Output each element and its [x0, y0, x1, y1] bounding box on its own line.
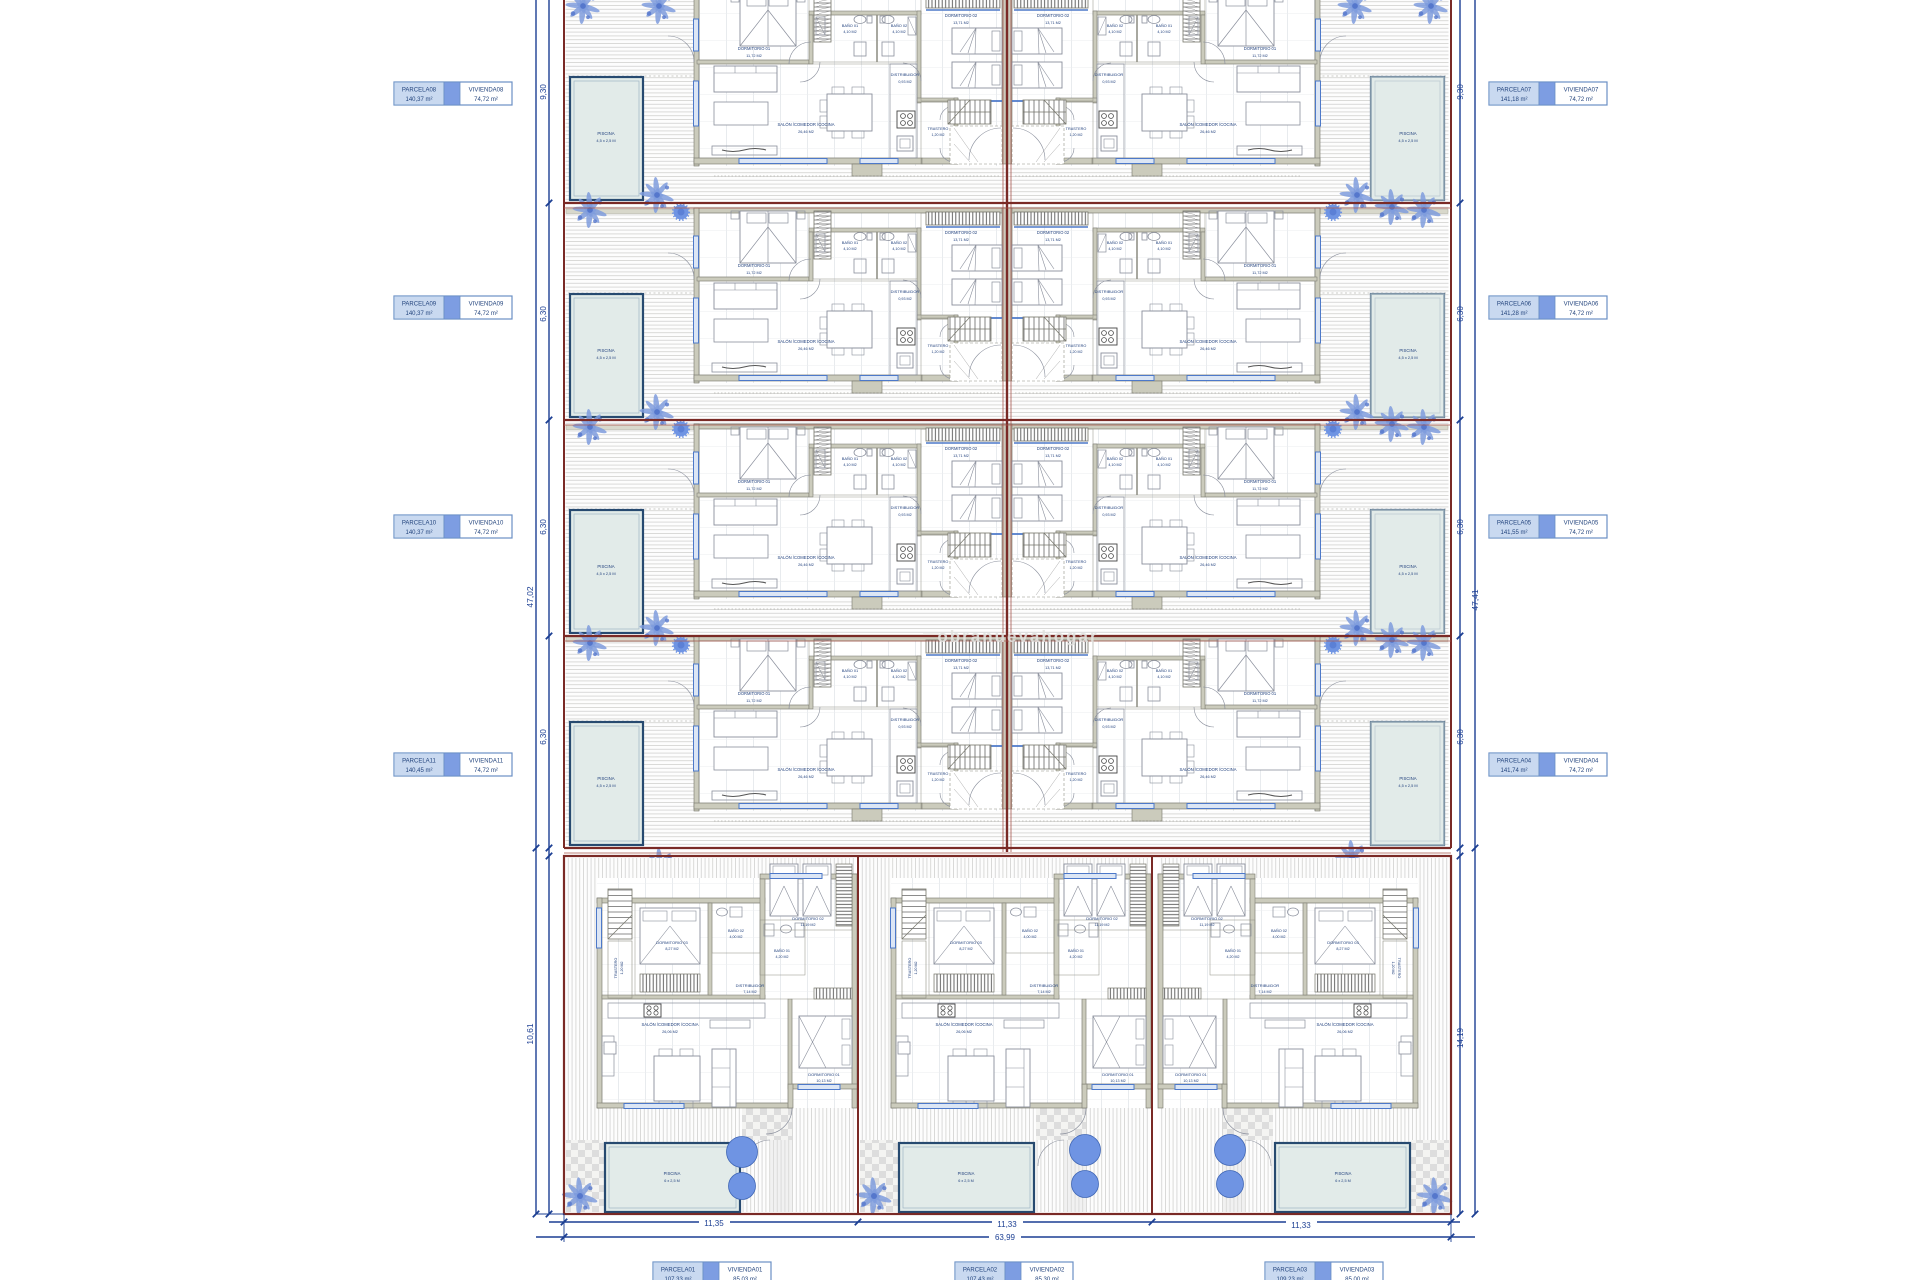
svg-text:PISCINA: PISCINA [958, 1171, 975, 1176]
svg-text:PARCELA04: PARCELA04 [1497, 759, 1532, 765]
svg-text:26,46 M2: 26,46 M2 [1200, 775, 1216, 779]
svg-text:4,10 M2: 4,10 M2 [1108, 247, 1121, 251]
svg-text:4,20 M2: 4,20 M2 [1227, 955, 1240, 959]
svg-text:11,72 M2: 11,72 M2 [1252, 54, 1268, 58]
svg-text:SALÓN /COMEDOR /COCINA: SALÓN /COMEDOR /COCINA [1179, 767, 1236, 772]
svg-text:PISCINA: PISCINA [597, 564, 614, 569]
svg-text:DISTRIBUIDOR: DISTRIBUIDOR [1095, 289, 1124, 294]
svg-text:SALÓN /COMEDOR /COCINA: SALÓN /COMEDOR /COCINA [1179, 555, 1236, 560]
svg-text:1,20 M2: 1,20 M2 [1070, 350, 1083, 354]
svg-text:DORMITORIO 01: DORMITORIO 01 [738, 46, 771, 51]
svg-text:11,33: 11,33 [997, 1220, 1017, 1229]
svg-text:BAÑO 02: BAÑO 02 [1107, 240, 1123, 245]
svg-text:10,13 M2: 10,13 M2 [1110, 1079, 1125, 1083]
svg-text:26,46 M2: 26,46 M2 [798, 347, 814, 351]
svg-text:VIVIENDA08: VIVIENDA08 [469, 88, 504, 94]
svg-text:1,20 M2: 1,20 M2 [914, 962, 918, 975]
svg-text:DORMITORIO 02: DORMITORIO 02 [792, 916, 824, 921]
svg-text:DORMITORIO 01: DORMITORIO 01 [1175, 1072, 1207, 1077]
svg-text:PARCELA05: PARCELA05 [1497, 521, 1532, 527]
svg-text:8,27 M2: 8,27 M2 [665, 947, 678, 951]
svg-text:VIVIENDA11: VIVIENDA11 [469, 759, 504, 765]
svg-text:9,30: 9,30 [539, 84, 548, 100]
svg-text:SALÓN /COMEDOR /COCINA: SALÓN /COMEDOR /COCINA [1179, 339, 1236, 344]
svg-text:141,28 m²: 141,28 m² [1500, 311, 1527, 317]
svg-text:4,5 x 2,5 M: 4,5 x 2,5 M [596, 355, 615, 360]
svg-text:74,72 m²: 74,72 m² [474, 768, 498, 774]
svg-text:8,27 M2: 8,27 M2 [959, 947, 972, 951]
svg-text:0,93 M2: 0,93 M2 [898, 80, 911, 84]
svg-text:BAÑO 01: BAÑO 01 [1156, 23, 1172, 28]
svg-text:DISTRIBUIDOR: DISTRIBUIDOR [891, 717, 920, 722]
svg-text:BAÑO 02: BAÑO 02 [1107, 668, 1123, 673]
svg-text:26,46 M2: 26,46 M2 [798, 563, 814, 567]
svg-text:4,10 M2: 4,10 M2 [892, 30, 905, 34]
svg-text:TRASTERO: TRASTERO [1066, 772, 1087, 776]
svg-text:4,20 M2: 4,20 M2 [776, 955, 789, 959]
svg-text:DISTRIBUIDOR: DISTRIBUIDOR [1095, 717, 1124, 722]
svg-text:BAÑO 01: BAÑO 01 [842, 23, 858, 28]
svg-text:6,30: 6,30 [1456, 519, 1465, 535]
svg-text:4,5 x 2,5 M: 4,5 x 2,5 M [1398, 138, 1417, 143]
svg-text:PARCELA08: PARCELA08 [402, 88, 437, 94]
svg-text:4,00 M2: 4,00 M2 [1024, 935, 1037, 939]
svg-text:26,46 M2: 26,46 M2 [1200, 563, 1216, 567]
svg-text:0,93 M2: 0,93 M2 [1102, 725, 1115, 729]
svg-text:DORMITORIO 02: DORMITORIO 02 [945, 658, 978, 663]
svg-text:PISCINA: PISCINA [597, 348, 614, 353]
svg-text:4,10 M2: 4,10 M2 [1108, 675, 1121, 679]
svg-text:1,20 M2: 1,20 M2 [1391, 962, 1395, 975]
svg-text:13,71 M2: 13,71 M2 [953, 21, 969, 25]
svg-text:26,06 M2: 26,06 M2 [662, 1030, 678, 1034]
svg-text:0,93 M2: 0,93 M2 [898, 297, 911, 301]
svg-text:TRASTERO: TRASTERO [908, 958, 912, 979]
svg-text:11,33: 11,33 [1291, 1221, 1311, 1230]
svg-text:DORMITORIO 01: DORMITORIO 01 [738, 479, 771, 484]
svg-text:VIVIENDA05: VIVIENDA05 [1564, 521, 1599, 527]
svg-text:26,46 M2: 26,46 M2 [1200, 130, 1216, 134]
svg-text:0,93 M2: 0,93 M2 [1102, 297, 1115, 301]
svg-text:11,72 M2: 11,72 M2 [1252, 699, 1268, 703]
svg-text:11,72 M2: 11,72 M2 [746, 699, 762, 703]
svg-text:VIVIENDA09: VIVIENDA09 [469, 302, 504, 308]
svg-text:74,72 m²: 74,72 m² [474, 97, 498, 103]
svg-text:6 x 2,5 M: 6 x 2,5 M [1335, 1179, 1351, 1183]
svg-text:4,10 M2: 4,10 M2 [1108, 463, 1121, 467]
svg-text:DISTRIBUIDOR: DISTRIBUIDOR [1251, 983, 1280, 988]
svg-text:BAÑO 02: BAÑO 02 [891, 668, 907, 673]
svg-text:13,71 M2: 13,71 M2 [953, 454, 969, 458]
svg-text:4,10 M2: 4,10 M2 [843, 30, 856, 34]
svg-text:VIVIENDA07: VIVIENDA07 [1564, 88, 1599, 94]
svg-text:BAÑO 01: BAÑO 01 [1156, 240, 1172, 245]
svg-text:4,10 M2: 4,10 M2 [843, 675, 856, 679]
svg-text:63,99: 63,99 [995, 1233, 1016, 1242]
svg-text:TRASTERO: TRASTERO [1066, 344, 1087, 348]
svg-text:DORMITORIO 01: DORMITORIO 01 [1244, 479, 1277, 484]
svg-text:11,19 M2: 11,19 M2 [1094, 923, 1109, 927]
svg-text:DORMITORIO 02: DORMITORIO 02 [1037, 658, 1070, 663]
svg-text:141,18 m²: 141,18 m² [1500, 97, 1527, 103]
svg-text:DORMITORIO 03: DORMITORIO 03 [950, 940, 982, 945]
svg-text:BAÑO 02: BAÑO 02 [728, 928, 744, 933]
svg-text:DORMITORIO 01: DORMITORIO 01 [738, 691, 771, 696]
svg-text:74,72 m²: 74,72 m² [474, 311, 498, 317]
svg-text:1,20 M2: 1,20 M2 [932, 778, 945, 782]
svg-text:4,10 M2: 4,10 M2 [1157, 463, 1170, 467]
svg-text:TRASTERO: TRASTERO [1066, 560, 1087, 564]
svg-text:PISCINA: PISCINA [1399, 348, 1416, 353]
svg-text:4,10 M2: 4,10 M2 [843, 463, 856, 467]
svg-text:TRASTERO: TRASTERO [928, 772, 949, 776]
svg-text:140,37 m²: 140,37 m² [405, 311, 432, 317]
svg-text:PISCINA: PISCINA [664, 1171, 681, 1176]
svg-text:DORMITORIO 02: DORMITORIO 02 [1037, 446, 1070, 451]
svg-text:PISCINA: PISCINA [1399, 131, 1416, 136]
svg-text:14,19: 14,19 [1456, 1027, 1465, 1048]
svg-text:1,20 M2: 1,20 M2 [932, 133, 945, 137]
svg-text:13,71 M2: 13,71 M2 [1045, 21, 1061, 25]
svg-text:13,71 M2: 13,71 M2 [953, 666, 969, 670]
svg-text:26,46 M2: 26,46 M2 [798, 130, 814, 134]
svg-text:74,72 m²: 74,72 m² [474, 530, 498, 536]
svg-text:DISTRIBUIDOR: DISTRIBUIDOR [736, 983, 765, 988]
svg-text:DISTRIBUIDOR: DISTRIBUIDOR [1095, 505, 1124, 510]
svg-text:SALÓN /COMEDOR /COCINA: SALÓN /COMEDOR /COCINA [777, 555, 834, 560]
svg-text:1,20 M2: 1,20 M2 [620, 962, 624, 975]
svg-text:11,19 M2: 11,19 M2 [800, 923, 815, 927]
svg-text:13,71 M2: 13,71 M2 [1045, 454, 1061, 458]
svg-text:DORMITORIO 03: DORMITORIO 03 [656, 940, 688, 945]
svg-text:PARCELA10: PARCELA10 [402, 521, 437, 527]
svg-text:BAÑO 02: BAÑO 02 [1022, 928, 1038, 933]
svg-text:26,06 M2: 26,06 M2 [1337, 1030, 1353, 1034]
svg-text:PISCINA: PISCINA [597, 131, 614, 136]
svg-text:PARCELA03: PARCELA03 [1273, 1268, 1308, 1274]
svg-text:BAÑO 01: BAÑO 01 [1156, 668, 1172, 673]
svg-text:10,13 M2: 10,13 M2 [816, 1079, 831, 1083]
svg-text:PARCELA09: PARCELA09 [402, 302, 437, 308]
svg-text:VIVIENDA06: VIVIENDA06 [1564, 302, 1599, 308]
svg-text:4,10 M2: 4,10 M2 [892, 463, 905, 467]
svg-text:DORMITORIO 01: DORMITORIO 01 [738, 263, 771, 268]
svg-text:DORMITORIO 02: DORMITORIO 02 [1037, 230, 1070, 235]
svg-text:TRASTERO: TRASTERO [1066, 127, 1087, 131]
svg-text:140,37 m²: 140,37 m² [405, 97, 432, 103]
svg-text:4,5 x 2,5 M: 4,5 x 2,5 M [1398, 783, 1417, 788]
svg-text:BAÑO 02: BAÑO 02 [891, 456, 907, 461]
svg-text:DISTRIBUIDOR: DISTRIBUIDOR [891, 505, 920, 510]
svg-text:TRASTERO: TRASTERO [928, 127, 949, 131]
svg-text:DISTRIBUIDOR: DISTRIBUIDOR [891, 72, 920, 77]
svg-text:DORMITORIO 03: DORMITORIO 03 [1327, 940, 1359, 945]
svg-text:TRASTERO: TRASTERO [928, 560, 949, 564]
svg-text:1,20 M2: 1,20 M2 [1070, 566, 1083, 570]
svg-text:4,10 M2: 4,10 M2 [1108, 30, 1121, 34]
svg-text:PISCINA: PISCINA [1399, 776, 1416, 781]
svg-text:4,10 M2: 4,10 M2 [892, 675, 905, 679]
svg-text:11,72 M2: 11,72 M2 [1252, 271, 1268, 275]
svg-text:DORMITORIO 02: DORMITORIO 02 [1086, 916, 1118, 921]
svg-text:6,30: 6,30 [539, 519, 548, 535]
svg-text:74,72 m²: 74,72 m² [1569, 311, 1593, 317]
svg-text:10,61: 10,61 [525, 1023, 535, 1045]
svg-text:BAÑO 01: BAÑO 01 [774, 948, 790, 953]
svg-text:4,20 M2: 4,20 M2 [1070, 955, 1083, 959]
svg-text:4,00 M2: 4,00 M2 [730, 935, 743, 939]
svg-text:BAÑO 02: BAÑO 02 [1271, 928, 1287, 933]
svg-text:DORMITORIO 02: DORMITORIO 02 [945, 230, 978, 235]
svg-text:8,27 M2: 8,27 M2 [1336, 947, 1349, 951]
svg-text:4,10 M2: 4,10 M2 [1157, 30, 1170, 34]
svg-text:SALÓN /COMEDOR /COCINA: SALÓN /COMEDOR /COCINA [777, 122, 834, 127]
svg-text:DORMITORIO 01: DORMITORIO 01 [1102, 1072, 1134, 1077]
svg-text:13,71 M2: 13,71 M2 [953, 238, 969, 242]
svg-text:11,72 M2: 11,72 M2 [746, 487, 762, 491]
svg-text:PISCINA: PISCINA [1399, 564, 1416, 569]
svg-text:6 x 2,5 M: 6 x 2,5 M [958, 1179, 974, 1183]
svg-text:1,20 M2: 1,20 M2 [932, 350, 945, 354]
svg-text:SALÓN /COMEDOR /COCINA: SALÓN /COMEDOR /COCINA [777, 767, 834, 772]
svg-text:DISTRIBUIDOR: DISTRIBUIDOR [1030, 983, 1059, 988]
svg-text:DISTRIBUIDOR: DISTRIBUIDOR [891, 289, 920, 294]
svg-text:6,30: 6,30 [539, 306, 548, 322]
svg-text:DORMITORIO 02: DORMITORIO 02 [945, 446, 978, 451]
svg-text:141,74 m²: 141,74 m² [1500, 768, 1527, 774]
svg-text:VIVIENDA02: VIVIENDA02 [1030, 1268, 1065, 1274]
svg-text:4,5 x 2,5 M: 4,5 x 2,5 M [1398, 355, 1417, 360]
svg-text:4,5 x 2,5 M: 4,5 x 2,5 M [1398, 571, 1417, 576]
svg-text:9,30: 9,30 [1456, 84, 1465, 100]
svg-text:4,5 x 2,5 M: 4,5 x 2,5 M [596, 571, 615, 576]
svg-text:26,06 M2: 26,06 M2 [956, 1030, 972, 1034]
svg-text:PISCINA: PISCINA [1335, 1171, 1352, 1176]
svg-text:13,71 M2: 13,71 M2 [1045, 666, 1061, 670]
svg-text:4,00 M2: 4,00 M2 [1273, 935, 1286, 939]
svg-text:10,13 M2: 10,13 M2 [1183, 1079, 1198, 1083]
svg-text:7,14 M2: 7,14 M2 [1258, 990, 1271, 994]
svg-text:SALÓN /COMEDOR /COCINA: SALÓN /COMEDOR /COCINA [641, 1022, 698, 1027]
svg-text:0,93 M2: 0,93 M2 [1102, 80, 1115, 84]
svg-text:0,93 M2: 0,93 M2 [898, 513, 911, 517]
svg-text:VIVIENDA10: VIVIENDA10 [469, 521, 504, 527]
svg-text:DORMITORIO 02: DORMITORIO 02 [1037, 13, 1070, 18]
svg-text:SALÓN /COMEDOR /COCINA: SALÓN /COMEDOR /COCINA [777, 339, 834, 344]
svg-text:SALÓN /COMEDOR /COCINA: SALÓN /COMEDOR /COCINA [1179, 122, 1236, 127]
svg-text:BAÑO 02: BAÑO 02 [1107, 23, 1123, 28]
svg-text:47,02: 47,02 [525, 586, 535, 608]
svg-text:11,72 M2: 11,72 M2 [746, 54, 762, 58]
svg-text:1,20 M2: 1,20 M2 [1070, 778, 1083, 782]
svg-text:DORMITORIO 01: DORMITORIO 01 [1244, 46, 1277, 51]
svg-text:PARCELA06: PARCELA06 [1497, 302, 1532, 308]
svg-text:BAÑO 01: BAÑO 01 [842, 456, 858, 461]
svg-text:26,46 M2: 26,46 M2 [798, 775, 814, 779]
svg-text:26,46 M2: 26,46 M2 [1200, 347, 1216, 351]
svg-text:BAÑO 01: BAÑO 01 [1225, 948, 1241, 953]
svg-text:13,71 M2: 13,71 M2 [1045, 238, 1061, 242]
svg-text:0,93 M2: 0,93 M2 [1102, 513, 1115, 517]
svg-text:BAÑO 02: BAÑO 02 [1107, 456, 1123, 461]
svg-text:6 x 2,5 M: 6 x 2,5 M [664, 1179, 680, 1183]
svg-text:74,72 m²: 74,72 m² [1569, 97, 1593, 103]
svg-text:DISTRIBUIDOR: DISTRIBUIDOR [1095, 72, 1124, 77]
svg-text:47,41: 47,41 [1470, 589, 1480, 611]
svg-text:4,10 M2: 4,10 M2 [892, 247, 905, 251]
svg-text:BAÑO 01: BAÑO 01 [1068, 948, 1084, 953]
svg-text:BAÑO 01: BAÑO 01 [1156, 456, 1172, 461]
svg-text:7,14 M2: 7,14 M2 [743, 990, 756, 994]
svg-text:BAÑO 02: BAÑO 02 [891, 240, 907, 245]
svg-text:PARCELA01: PARCELA01 [661, 1268, 696, 1274]
svg-text:6,30: 6,30 [539, 729, 548, 745]
svg-text:11,19 M2: 11,19 M2 [1199, 923, 1214, 927]
svg-text:4,5 x 2,5 M: 4,5 x 2,5 M [596, 138, 615, 143]
svg-text:11,72 M2: 11,72 M2 [746, 271, 762, 275]
svg-text:11,35: 11,35 [704, 1219, 724, 1228]
svg-text:4,10 M2: 4,10 M2 [1157, 675, 1170, 679]
svg-text:VIVIENDA01: VIVIENDA01 [728, 1268, 763, 1274]
svg-text:DORMITORIO 02: DORMITORIO 02 [945, 13, 978, 18]
svg-text:BAÑO 01: BAÑO 01 [842, 668, 858, 673]
svg-text:1,20 M2: 1,20 M2 [932, 566, 945, 570]
svg-text:DORMITORIO 01: DORMITORIO 01 [1244, 691, 1277, 696]
svg-text:7,14 M2: 7,14 M2 [1037, 990, 1050, 994]
svg-text:BAÑO 02: BAÑO 02 [891, 23, 907, 28]
svg-text:SALÓN /COMEDOR /COCINA: SALÓN /COMEDOR /COCINA [1316, 1022, 1373, 1027]
svg-text:TRASTERO: TRASTERO [928, 344, 949, 348]
svg-text:VIVIENDA04: VIVIENDA04 [1564, 759, 1599, 765]
svg-text:74,72 m²: 74,72 m² [1569, 768, 1593, 774]
svg-text:0,93 M2: 0,93 M2 [898, 725, 911, 729]
svg-text:140,37 m²: 140,37 m² [405, 530, 432, 536]
svg-text:PARCELA02: PARCELA02 [963, 1268, 998, 1274]
svg-text:VIVIENDA03: VIVIENDA03 [1340, 1268, 1375, 1274]
svg-text:11,72 M2: 11,72 M2 [1252, 487, 1268, 491]
svg-text:1,20 M2: 1,20 M2 [1070, 133, 1083, 137]
svg-text:DORMITORIO 01: DORMITORIO 01 [1244, 263, 1277, 268]
svg-text:BAÑO 01: BAÑO 01 [842, 240, 858, 245]
svg-text:4,10 M2: 4,10 M2 [843, 247, 856, 251]
svg-text:TRASTERO: TRASTERO [614, 958, 618, 979]
svg-text:DORMITORIO 02: DORMITORIO 02 [1191, 916, 1223, 921]
svg-text:TRASTERO: TRASTERO [1397, 958, 1401, 979]
svg-text:obranuevahogar: obranuevahogar [937, 627, 1098, 646]
svg-text:74,72 m²: 74,72 m² [1569, 530, 1593, 536]
svg-text:6,30: 6,30 [1456, 729, 1465, 745]
svg-text:DORMITORIO 01: DORMITORIO 01 [808, 1072, 840, 1077]
svg-text:PISCINA: PISCINA [597, 776, 614, 781]
svg-text:PARCELA11: PARCELA11 [402, 759, 436, 765]
svg-text:141,55 m²: 141,55 m² [1500, 530, 1527, 536]
svg-text:140,45 m²: 140,45 m² [405, 768, 432, 774]
svg-text:SALÓN /COMEDOR /COCINA: SALÓN /COMEDOR /COCINA [935, 1022, 992, 1027]
svg-text:4,5 x 2,5 M: 4,5 x 2,5 M [596, 783, 615, 788]
svg-text:6,30: 6,30 [1456, 306, 1465, 322]
svg-text:4,10 M2: 4,10 M2 [1157, 247, 1170, 251]
svg-text:PARCELA07: PARCELA07 [1497, 88, 1532, 94]
